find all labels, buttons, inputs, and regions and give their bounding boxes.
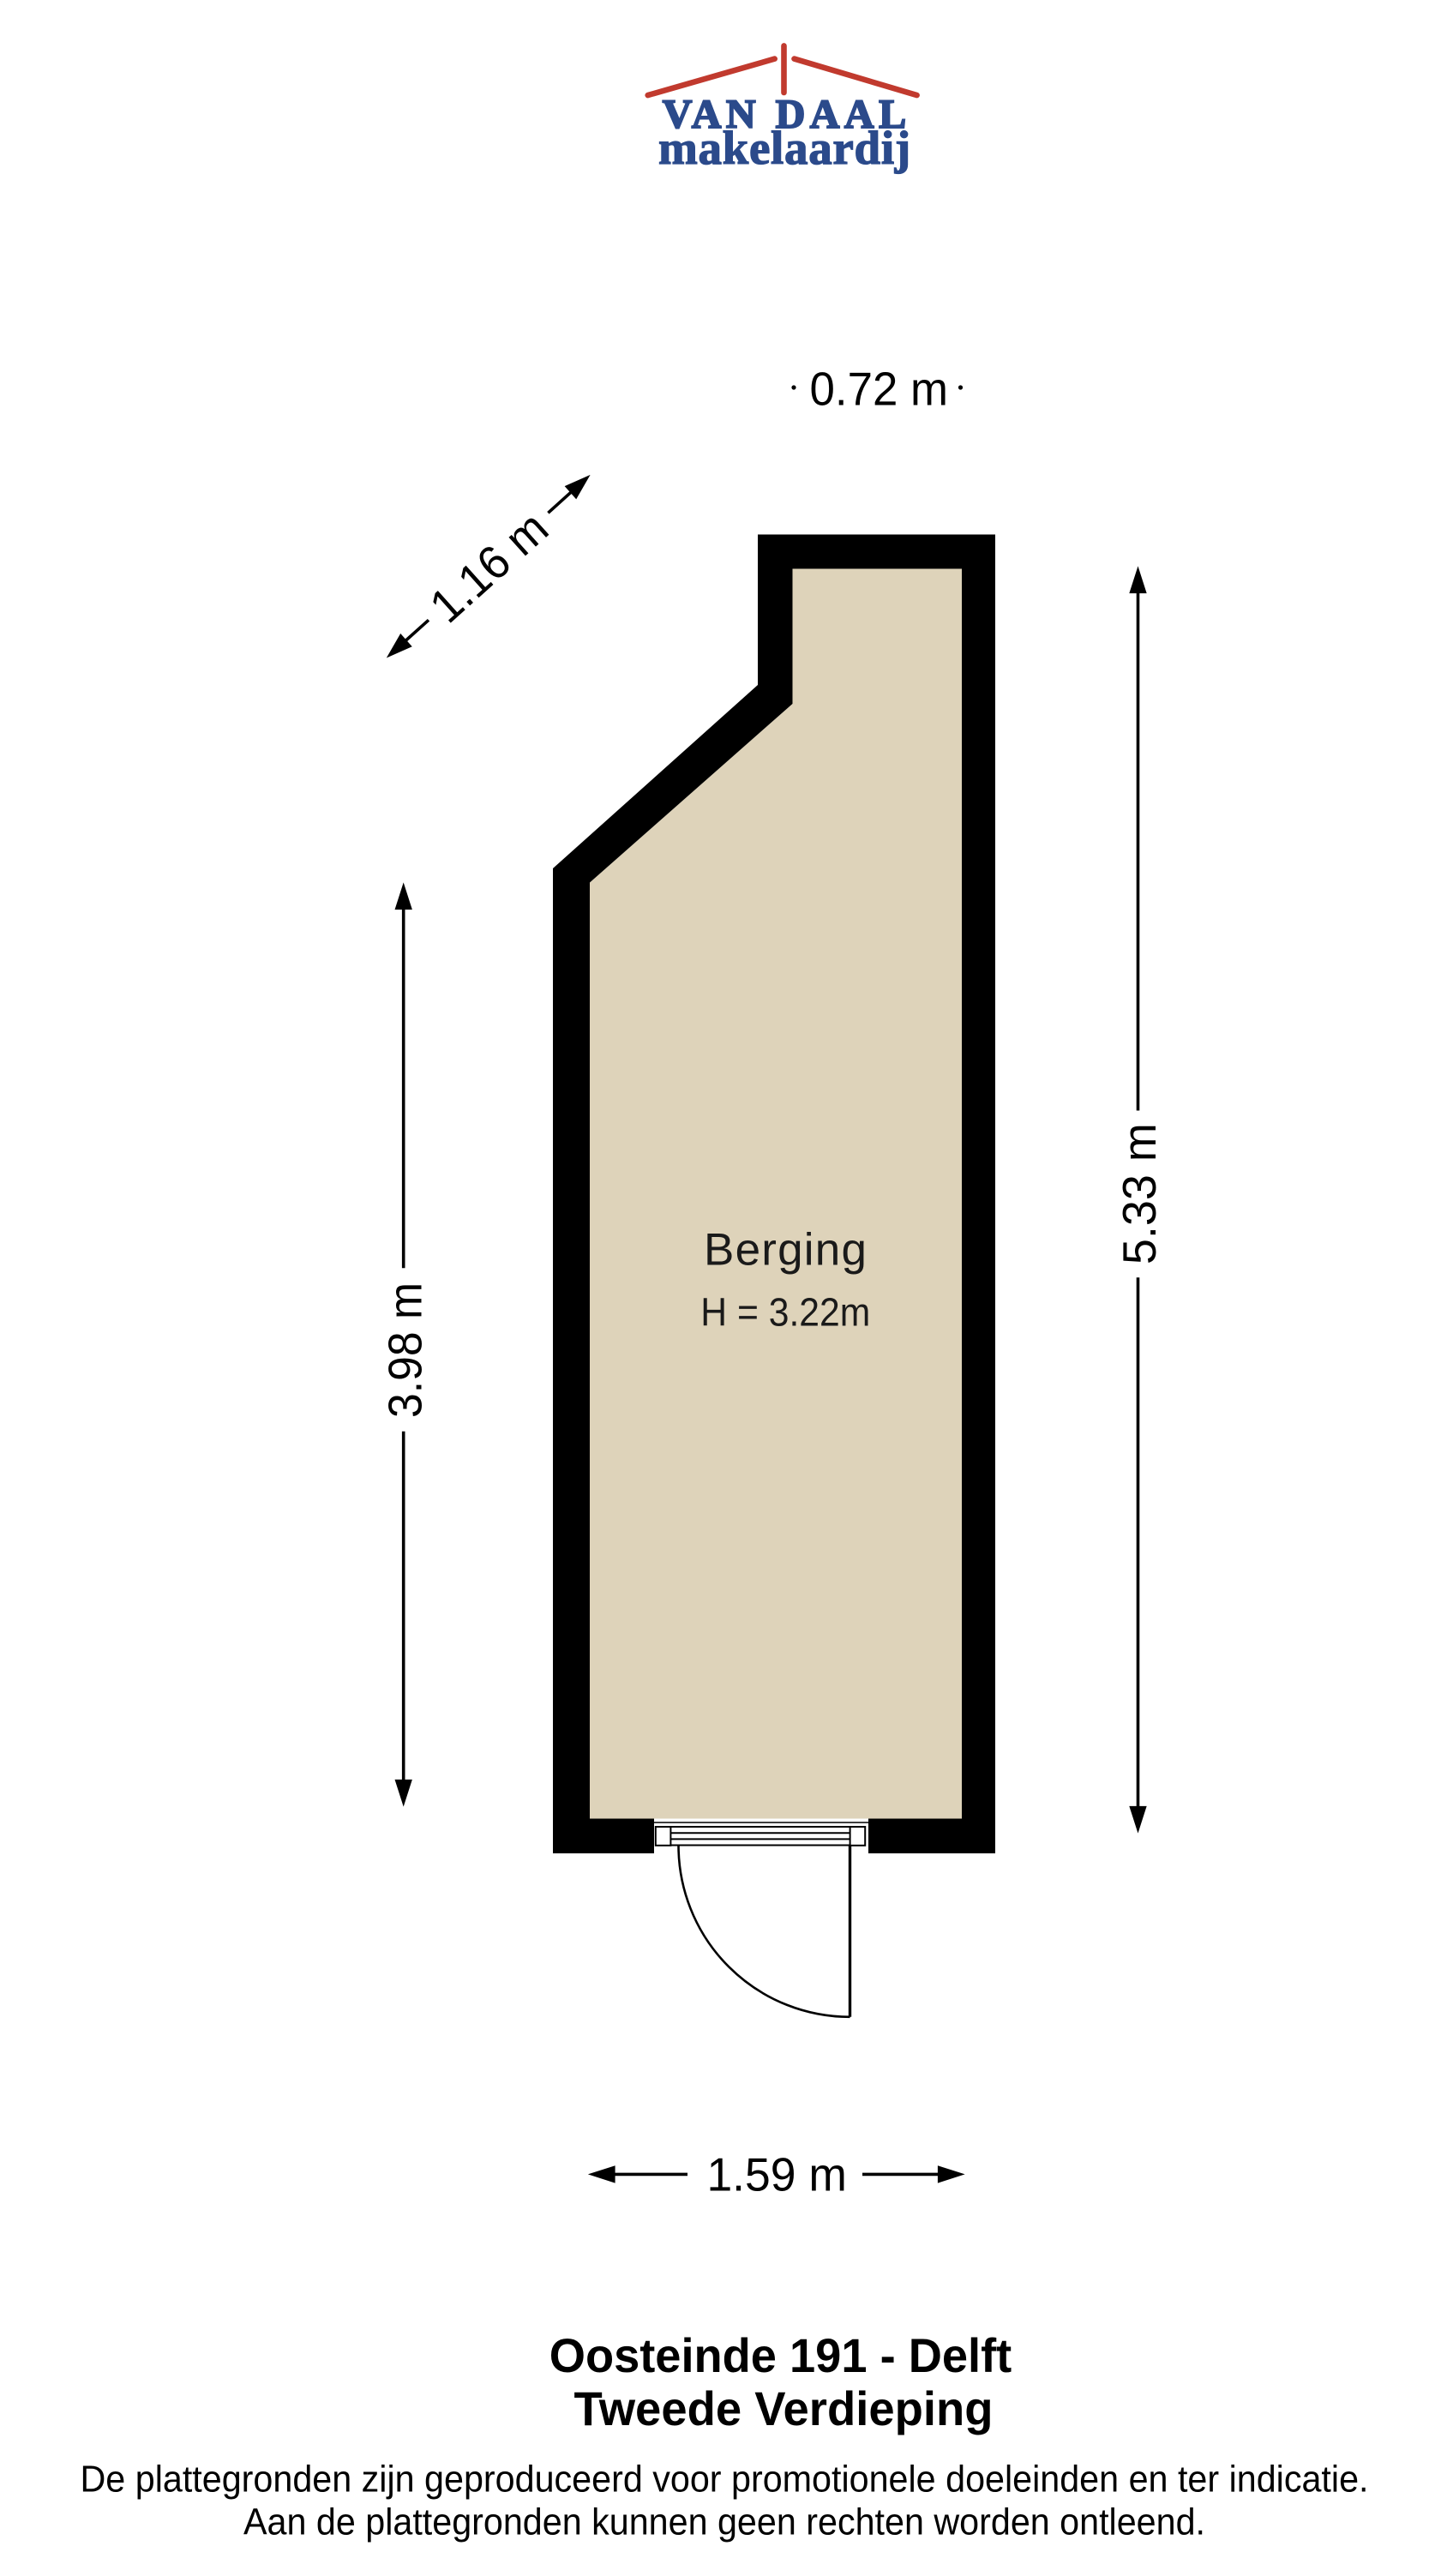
- svg-text:Tweede Verdieping: Tweede Verdieping: [574, 2381, 994, 2435]
- svg-text:5.33 m: 5.33 m: [1113, 1123, 1166, 1264]
- svg-text:H = 3.22m: H = 3.22m: [700, 1290, 870, 1335]
- svg-text:Berging: Berging: [704, 1224, 868, 1275]
- svg-text:De plattegronden zijn geproduc: De plattegronden zijn geproduceerd voor …: [81, 2459, 1369, 2501]
- svg-text:0.72 m: 0.72 m: [810, 362, 949, 415]
- svg-text:Oosteinde 191 - Delft: Oosteinde 191 - Delft: [549, 2328, 1012, 2382]
- svg-text:makelaardij: makelaardij: [658, 122, 911, 174]
- svg-text:1.59 m: 1.59 m: [706, 2148, 847, 2201]
- svg-text:Aan de plattegronden kunnen ge: Aan de plattegronden kunnen geen rechten…: [243, 2501, 1205, 2543]
- svg-text:3.98 m: 3.98 m: [379, 1282, 432, 1418]
